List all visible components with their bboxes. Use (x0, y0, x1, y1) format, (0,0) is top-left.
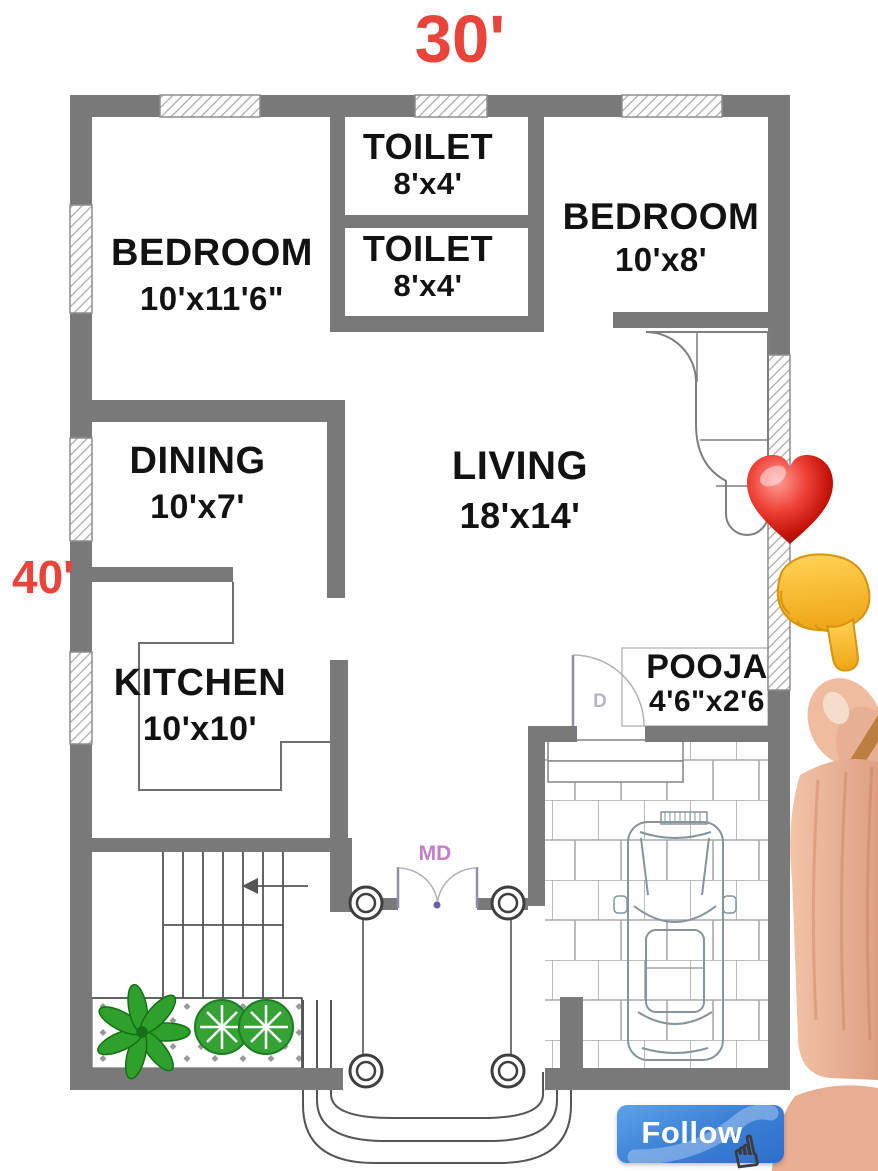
room-label-pooja: POOJA 4'6"x2'6 (617, 650, 797, 717)
door-label: D (584, 691, 616, 713)
room-size: 10'x10' (82, 711, 318, 748)
room-name: BEDROOM (563, 196, 760, 237)
room-name: TOILET (363, 228, 493, 269)
room-size: 4'6"x2'6 (617, 686, 797, 718)
room-name: POOJA (646, 648, 768, 686)
room-size: 8'x4' (338, 269, 518, 303)
room-size: 18'x14' (405, 496, 635, 536)
plot-height-label: 40' (12, 554, 96, 600)
room-label-kitchen: KITCHEN 10'x10' (82, 663, 318, 748)
room-name: LIVING (452, 444, 588, 488)
room-label-toilet-2: TOILET 8'x4' (338, 229, 518, 303)
room-name: BEDROOM (111, 232, 313, 274)
room-name: DINING (130, 440, 266, 482)
room-name: TOILET (363, 126, 493, 167)
room-label-bedroom-2: BEDROOM 10'x8' (545, 197, 777, 278)
entry-steps (548, 740, 683, 782)
room-label-living: LIVING 18'x14' (405, 444, 635, 536)
room-label-bedroom-1: BEDROOM 10'x11'6" (78, 233, 346, 317)
room-size: 10'x11'6" (78, 281, 346, 317)
video-frame: 30' 40' BEDROOM 10'x11'6" TOILET 8'x4' T… (0, 0, 878, 1171)
room-size: 10'x8' (545, 242, 777, 278)
main-door-label: MD (404, 842, 466, 866)
room-size: 10'x7' (85, 489, 310, 526)
plot-width-label: 30' (390, 6, 530, 73)
room-size: 8'x4' (338, 167, 518, 201)
room-label-toilet-1: TOILET 8'x4' (338, 127, 518, 201)
room-label-dining: DINING 10'x7' (85, 441, 310, 526)
round-bush (239, 1000, 293, 1054)
room-name: KITCHEN (114, 662, 286, 704)
